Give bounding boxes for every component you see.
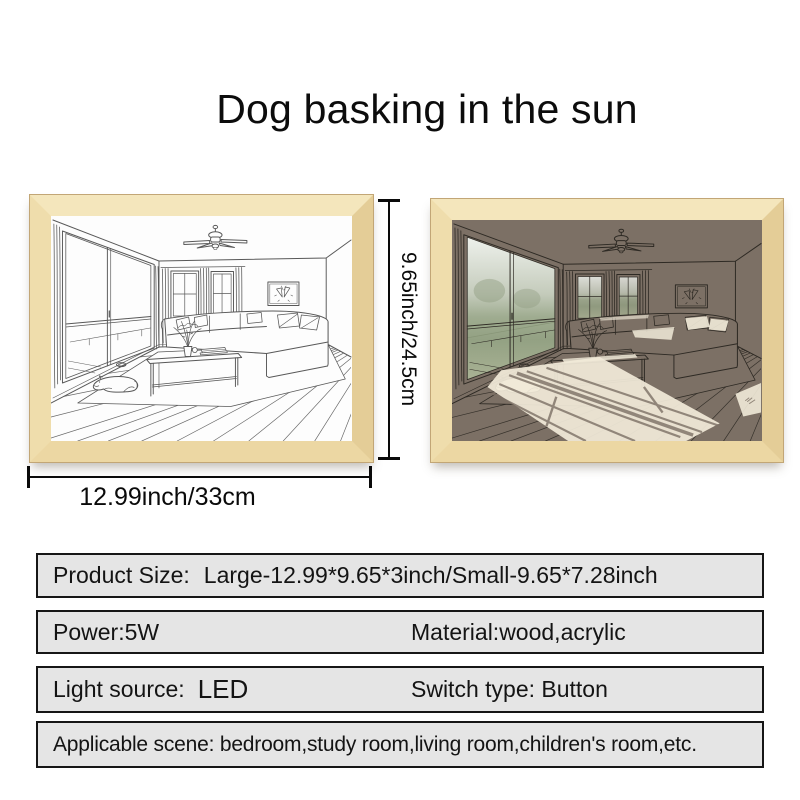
lit-led-scene	[452, 220, 762, 441]
lit-wood-frame	[431, 199, 783, 462]
width-dimension-label: 12.99inch/33cm	[10, 483, 325, 512]
height-dimension-label: 9.65inch/24.5cm	[393, 200, 423, 459]
spec-text-applicable-scene: Applicable scene: bedroom,study room,liv…	[53, 733, 697, 757]
spec-text-power: Power:5W	[53, 619, 159, 646]
unlit-wood-frame	[30, 195, 373, 462]
spec-box-power-material: Power:5W Material:wood,acrylic	[36, 610, 764, 654]
spec-box-light-switch: Light source: LED Switch type: Button	[36, 666, 764, 713]
spec-label-product-size: Product Size:	[53, 562, 190, 589]
spec-box-applicable-scene: Applicable scene: bedroom,study room,liv…	[36, 721, 764, 768]
unlit-line-art-scene	[51, 216, 352, 441]
spec-value-product-size: Large-12.99*9.65*3inch/Small-9.65*7.28in…	[204, 562, 658, 589]
spec-box-product-size: Product Size: Large-12.99*9.65*3inch/Sma…	[36, 553, 764, 598]
width-dimension-line	[28, 476, 371, 478]
height-dimension-line	[388, 200, 390, 459]
spec-text-switch-type: Switch type: Button	[411, 676, 608, 703]
spec-text-material: Material:wood,acrylic	[411, 619, 626, 646]
spec-value-light-source: LED	[198, 674, 249, 705]
page-title: Dog basking in the sun	[27, 86, 800, 133]
spec-label-light-source: Light source:	[53, 676, 185, 703]
